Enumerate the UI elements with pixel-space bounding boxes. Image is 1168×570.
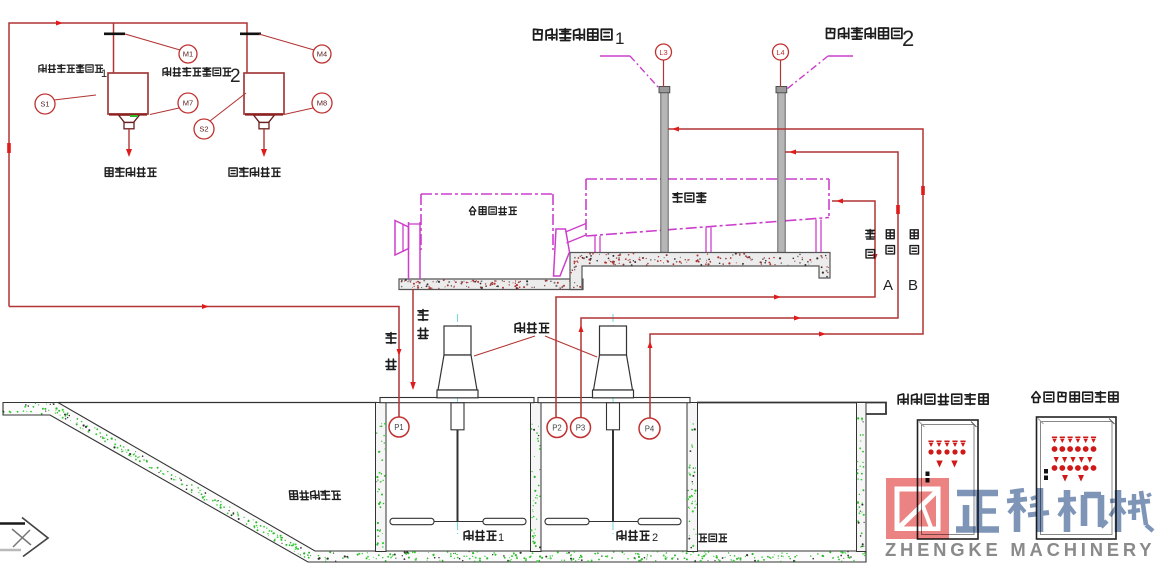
svg-text:1: 1 <box>498 532 504 544</box>
svg-text:B: B <box>908 277 918 294</box>
svg-text:L4: L4 <box>776 48 784 57</box>
svg-text:M7: M7 <box>183 99 193 108</box>
svg-text:M4: M4 <box>317 50 327 59</box>
svg-text:1: 1 <box>101 68 107 80</box>
svg-text:P4: P4 <box>645 425 655 434</box>
svg-text:2: 2 <box>230 66 241 87</box>
svg-text:2: 2 <box>652 532 658 544</box>
svg-text:P3: P3 <box>576 424 586 433</box>
svg-text:P2: P2 <box>552 424 562 433</box>
svg-text:2: 2 <box>902 26 914 51</box>
svg-text:P1: P1 <box>394 423 404 432</box>
svg-text:A: A <box>883 277 893 294</box>
svg-text:ZHENGKE MACHINERY: ZHENGKE MACHINERY <box>885 539 1155 560</box>
svg-text:M8: M8 <box>317 99 327 108</box>
svg-text:L3: L3 <box>659 48 667 57</box>
svg-text:S2: S2 <box>199 125 208 134</box>
svg-text:S1: S1 <box>40 100 49 109</box>
svg-text:1: 1 <box>615 29 624 48</box>
svg-text:M1: M1 <box>183 50 193 59</box>
